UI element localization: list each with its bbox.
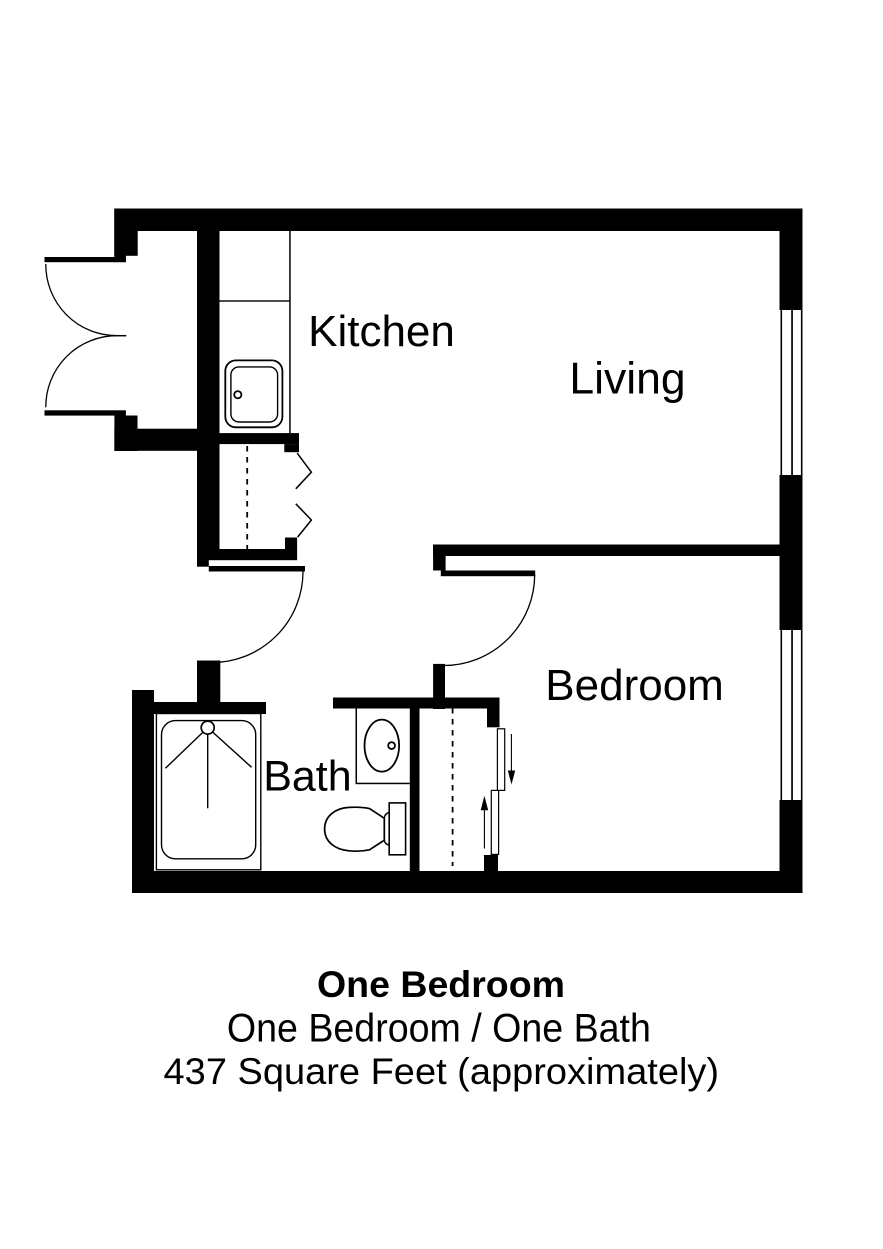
svg-text:Bath: Bath: [263, 753, 351, 801]
svg-text:Bedroom: Bedroom: [545, 661, 724, 710]
svg-text:One Bedroom: One Bedroom: [317, 963, 565, 1005]
svg-text:One Bedroom / One Bath: One Bedroom / One Bath: [227, 1007, 651, 1051]
svg-text:Living: Living: [569, 354, 685, 403]
svg-text:437 Square Feet (approximately: 437 Square Feet (approximately): [164, 1050, 720, 1092]
svg-text:Kitchen: Kitchen: [308, 307, 455, 356]
